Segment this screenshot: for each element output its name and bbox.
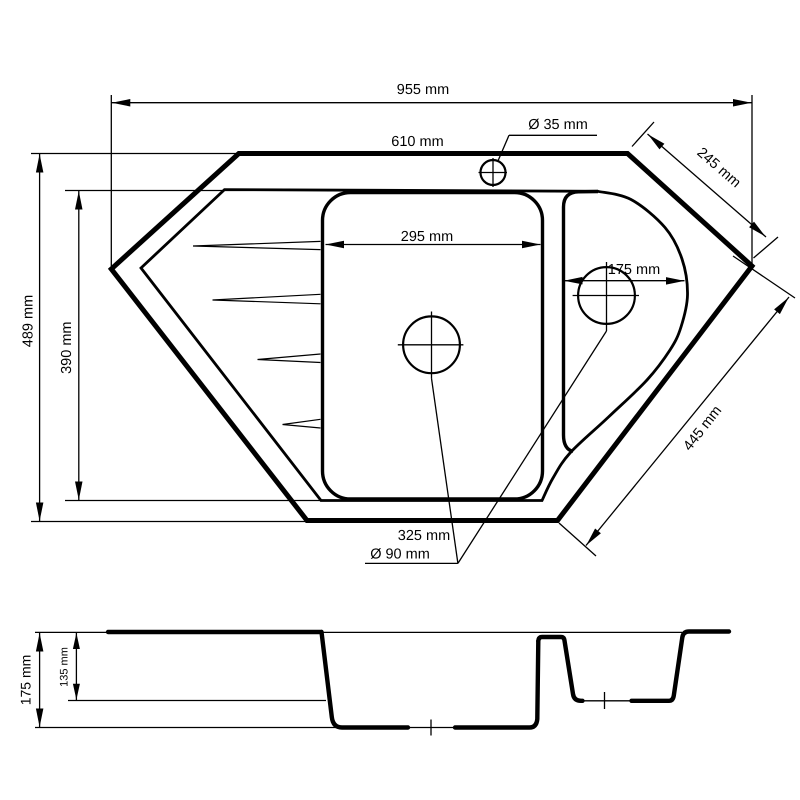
svg-text:135 mm: 135 mm [59,647,71,687]
svg-text:Ø 35 mm: Ø 35 mm [528,117,588,133]
svg-text:325 mm: 325 mm [398,528,450,544]
svg-text:295 mm: 295 mm [401,229,453,245]
svg-text:489 mm: 489 mm [21,295,37,347]
svg-text:175 mm: 175 mm [608,262,660,278]
svg-text:175 mm: 175 mm [18,655,34,706]
svg-text:610 mm: 610 mm [391,134,443,150]
svg-text:Ø 90 mm: Ø 90 mm [370,547,430,563]
svg-text:955 mm: 955 mm [397,82,449,98]
svg-text:390 mm: 390 mm [59,322,75,374]
